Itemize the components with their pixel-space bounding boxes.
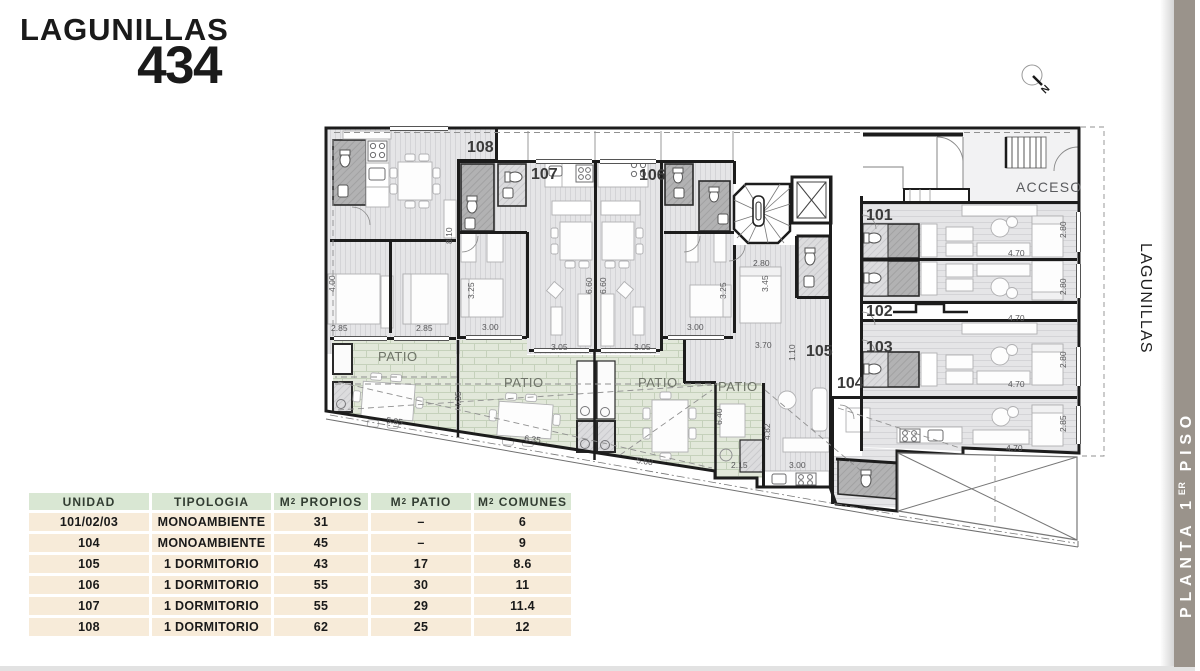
- svg-text:PATIO: PATIO: [638, 375, 678, 390]
- svg-text:6.35: 6.35: [524, 433, 542, 445]
- svg-text:4.70: 4.70: [1008, 313, 1025, 323]
- svg-text:4.35: 4.35: [453, 391, 463, 408]
- svg-text:4.70: 4.70: [1006, 443, 1023, 453]
- svg-text:2.85: 2.85: [416, 323, 433, 333]
- svg-text:3.00: 3.00: [687, 322, 704, 332]
- svg-text:5.85: 5.85: [386, 415, 404, 427]
- svg-text:107: 107: [531, 166, 558, 183]
- svg-text:5.60: 5.60: [636, 455, 654, 467]
- svg-text:4.70: 4.70: [1008, 379, 1025, 389]
- svg-text:N: N: [1039, 83, 1052, 96]
- svg-text:8.10: 8.10: [444, 227, 454, 244]
- svg-text:PATIO: PATIO: [378, 349, 418, 364]
- svg-text:2.80: 2.80: [1058, 278, 1068, 295]
- svg-text:3.45: 3.45: [760, 275, 770, 292]
- svg-text:4.00: 4.00: [327, 275, 337, 292]
- svg-text:6.60: 6.60: [598, 277, 608, 294]
- svg-text:1.10: 1.10: [787, 344, 797, 361]
- svg-text:106: 106: [639, 167, 666, 184]
- svg-text:3.00: 3.00: [789, 460, 806, 470]
- svg-text:108: 108: [467, 139, 494, 156]
- svg-text:2.80: 2.80: [1058, 221, 1068, 238]
- svg-text:103: 103: [866, 339, 893, 356]
- svg-text:6.60: 6.60: [584, 277, 594, 294]
- svg-text:2.80: 2.80: [1058, 351, 1068, 368]
- svg-text:2.15: 2.15: [731, 460, 748, 470]
- svg-text:3.70: 3.70: [755, 340, 772, 350]
- svg-text:3.25: 3.25: [466, 282, 476, 299]
- svg-text:104: 104: [837, 375, 864, 392]
- svg-text:6.40: 6.40: [714, 408, 724, 425]
- svg-text:3.25: 3.25: [718, 282, 728, 299]
- svg-text:2.85: 2.85: [331, 323, 348, 333]
- svg-text:3.00: 3.00: [482, 322, 499, 332]
- svg-text:4.70: 4.70: [1008, 248, 1025, 258]
- svg-text:2.85: 2.85: [1058, 415, 1068, 432]
- svg-text:2.80: 2.80: [753, 258, 770, 268]
- svg-text:PATIO: PATIO: [504, 375, 544, 390]
- svg-text:105: 105: [806, 343, 833, 360]
- svg-text:PATIO: PATIO: [718, 379, 758, 394]
- svg-text:3.05: 3.05: [634, 342, 651, 352]
- svg-text:4.82: 4.82: [762, 423, 772, 440]
- svg-text:ACCESO: ACCESO: [1016, 179, 1082, 195]
- svg-text:3.05: 3.05: [551, 342, 568, 352]
- svg-text:102: 102: [866, 303, 893, 320]
- svg-text:101: 101: [866, 207, 893, 224]
